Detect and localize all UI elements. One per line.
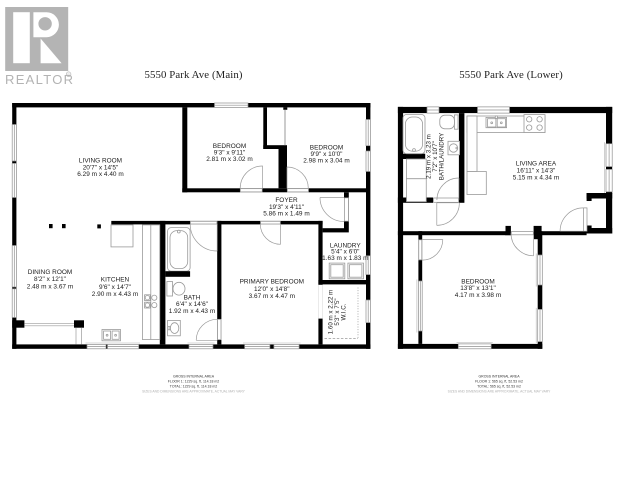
svg-text:2.81 m x 3.02 m: 2.81 m x 3.02 m [206,156,252,163]
svg-text:6.29 m x 4.40 m: 6.29 m x 4.40 m [77,171,123,178]
svg-text:PRIMARY BEDROOM: PRIMARY BEDROOM [240,279,304,286]
svg-text:5550 Park Ave (Main): 5550 Park Ave (Main) [144,69,242,81]
svg-text:2.19 m x 3.23 m: 2.19 m x 3.23 m [425,134,432,179]
svg-text:DINING ROOM: DINING ROOM [28,269,73,276]
svg-text:LIVING AREA: LIVING AREA [516,160,557,167]
svg-text:2.90 m x 4.43 m: 2.90 m x 4.43 m [92,291,138,298]
svg-text:SIZES AND DIMENSIONS ARE APPRO: SIZES AND DIMENSIONS ARE APPROXIMATE, AC… [142,390,246,394]
svg-text:GROSS INTERNAL AREA: GROSS INTERNAL AREA [173,374,215,378]
svg-text:1.92 m x 4.43 m: 1.92 m x 4.43 m [169,308,215,315]
svg-text:KITCHEN: KITCHEN [101,277,130,284]
svg-text:FLOOR 1: 1229 sq. ft, 114.18 m: FLOOR 1: 1229 sq. ft, 114.18 m2 [168,379,220,383]
svg-text:REALTOR: REALTOR [5,72,74,87]
svg-text:1.63 m x 1.83 m: 1.63 m x 1.83 m [322,255,368,262]
svg-text:TOTAL: 565 sq. ft, 52.53 m2: TOTAL: 565 sq. ft, 52.53 m2 [477,384,521,388]
svg-text:GROSS INTERNAL AREA: GROSS INTERNAL AREA [478,374,520,378]
svg-text:5550 Park Ave (Lower): 5550 Park Ave (Lower) [459,69,563,81]
svg-text:9'6" x 14'7": 9'6" x 14'7" [99,284,132,291]
svg-text:SIZES AND DIMENSIONS ARE APPRO: SIZES AND DIMENSIONS ARE APPROXIMATE, AC… [448,390,552,394]
svg-text:BATH/LAUNDRY: BATH/LAUNDRY [439,133,446,180]
svg-text:2.48 m x 3.67 m: 2.48 m x 3.67 m [27,283,73,290]
svg-text:3.67 m x 4.47 m: 3.67 m x 4.47 m [249,293,295,300]
svg-text:5'3" x 7'5": 5'3" x 7'5" [334,298,341,325]
svg-text:7'2" x 10'7": 7'2" x 10'7" [432,141,439,172]
svg-text:5.15 m x 4.34 m: 5.15 m x 4.34 m [513,175,559,182]
svg-text:TOTAL: 1229 sq. ft, 114.18 m2: TOTAL: 1229 sq. ft, 114.18 m2 [170,384,218,388]
svg-text:FLOOR 1: 565 sq. ft, 52.53 m2: FLOOR 1: 565 sq. ft, 52.53 m2 [475,379,523,383]
svg-text:12'0" x 14'8": 12'0" x 14'8" [254,286,290,293]
svg-text:16'11" x 14'3": 16'11" x 14'3" [517,168,556,175]
svg-text:W.I.C.: W.I.C. [340,303,347,320]
svg-text:8'2" x 12'1": 8'2" x 12'1" [34,276,67,283]
svg-text:2.98 m x 3.04 m: 2.98 m x 3.04 m [303,157,349,164]
svg-text:1.60 m x 2.22 m: 1.60 m x 2.22 m [327,290,334,335]
svg-text:5.86 m x 1.49 m: 5.86 m x 1.49 m [263,211,309,218]
svg-text:4.17 m x 3.98 m: 4.17 m x 3.98 m [455,292,501,299]
